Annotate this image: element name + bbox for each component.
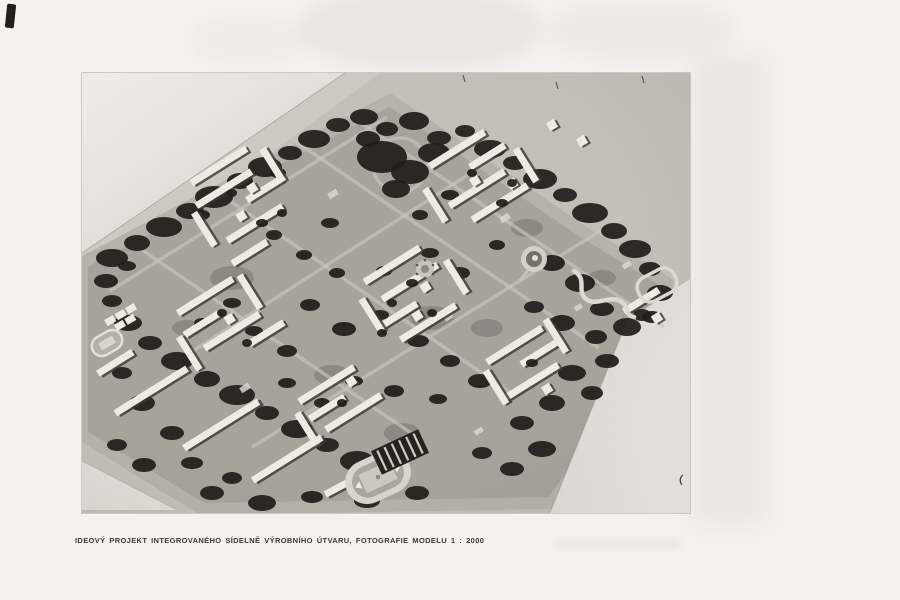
bleedthrough-artifact [556, 538, 681, 550]
scan-shading [692, 55, 767, 525]
scan-edge-artifact [5, 4, 16, 29]
model-photograph [82, 73, 690, 513]
figure-caption: IDEOVÝ PROJEKT INTEGROVANÉHO SÍDELNĚ VÝR… [75, 536, 484, 545]
bleedthrough-artifact [190, 16, 305, 64]
bleedthrough-artifact [300, 0, 540, 70]
model-photo-illustration [82, 73, 690, 513]
scanned-book-page: IDEOVÝ PROJEKT INTEGROVANÉHO SÍDELNĚ VÝR… [0, 0, 900, 600]
photo-vignette [82, 73, 690, 513]
bleedthrough-artifact [545, 0, 735, 60]
